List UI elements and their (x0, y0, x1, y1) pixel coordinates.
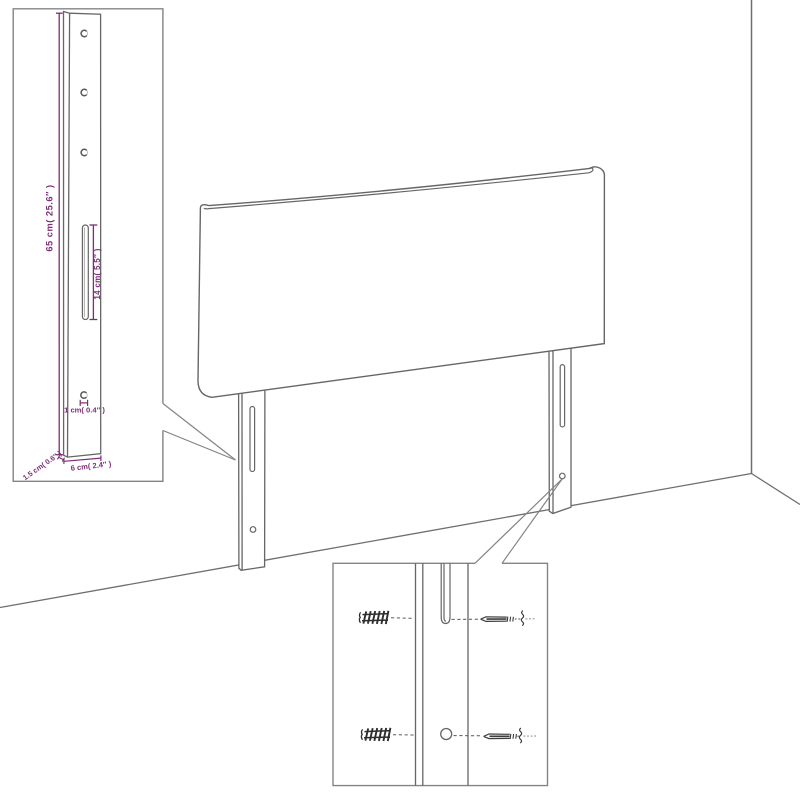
svg-text:14 cm( 5.5″ ): 14 cm( 5.5″ ) (93, 248, 102, 299)
svg-text:1 cm( 0.4″ ): 1 cm( 0.4″ ) (64, 406, 105, 415)
svg-text:65 cm( 25.6″ ): 65 cm( 25.6″ ) (44, 184, 54, 251)
